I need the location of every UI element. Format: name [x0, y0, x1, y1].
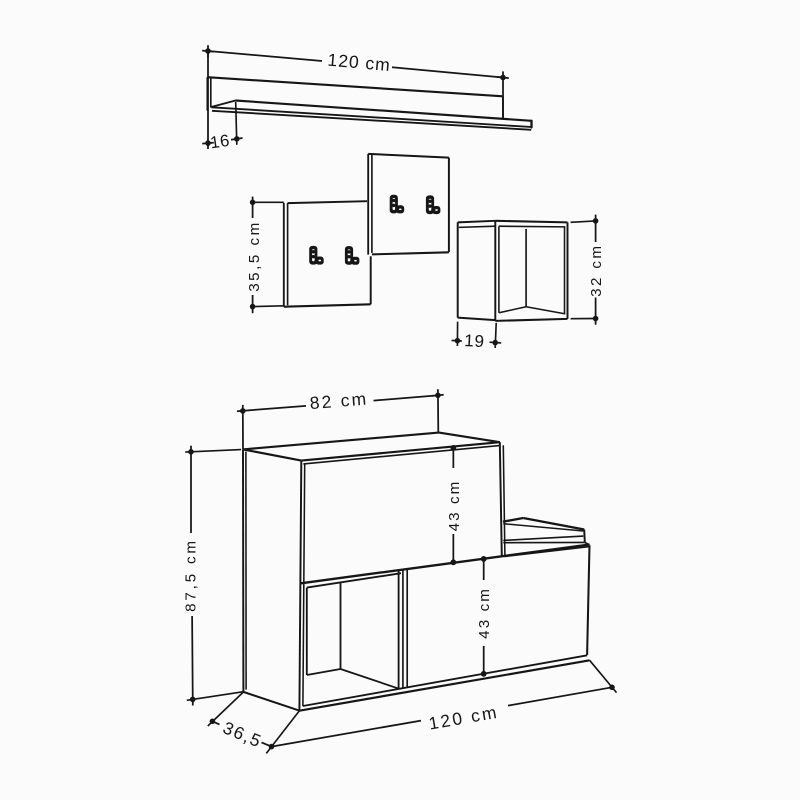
svg-text:87,5 cm: 87,5 cm	[182, 538, 199, 612]
svg-text:19: 19	[464, 331, 485, 351]
svg-text:32 cm: 32 cm	[588, 244, 605, 297]
svg-text:43 cm: 43 cm	[476, 587, 493, 639]
svg-text:16: 16	[209, 131, 231, 153]
svg-text:43 cm: 43 cm	[446, 480, 463, 532]
svg-text:35,5 cm: 35,5 cm	[246, 220, 263, 292]
